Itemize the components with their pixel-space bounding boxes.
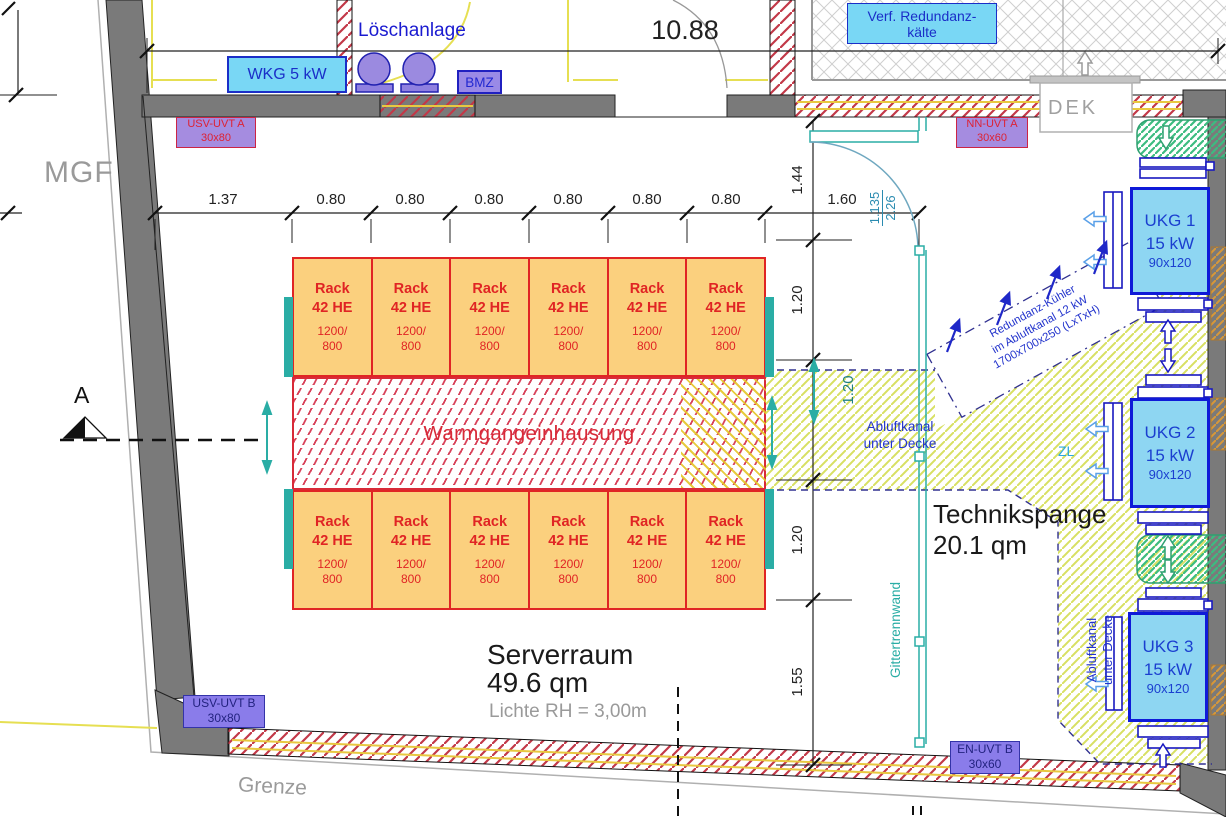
dim-right-0: 1.44 <box>789 153 805 207</box>
usv-uvt-b-box: USV-UVT B 30x80 <box>183 695 265 728</box>
section-marker-label: A <box>74 382 89 409</box>
edge-marks <box>913 806 921 815</box>
usv-uvt-a-name: USV-UVT A <box>177 118 255 132</box>
ukg3-size: 90x120 <box>1147 681 1190 698</box>
technikspange-area: 20.1 qm <box>933 530 1027 561</box>
rack-cell: Rack42 HE1200/800 <box>449 492 528 608</box>
technikspange-name: Technikspange <box>933 499 1106 530</box>
dim-rack-3: 0.80 <box>459 191 519 208</box>
rack-cell: Rack42 HE1200/800 <box>607 492 686 608</box>
containment-panel <box>284 297 293 377</box>
ukg1-power: 15 kW <box>1146 233 1194 255</box>
dim-rack-0: 1.37 <box>193 191 253 208</box>
rack-cell: Rack42 HE1200/800 <box>294 259 371 375</box>
nn-uvt-a-size: 30x60 <box>957 132 1027 146</box>
warmgang-yellow-overlay <box>681 379 766 488</box>
abluftkanal-vertical-label: Abluftkanal unter Decke <box>1083 588 1117 712</box>
dim-door-fraction-top: 1.135 <box>867 190 883 227</box>
rack-cell: Rack42 HE1200/800 <box>528 259 607 375</box>
grenze-label: Grenze <box>237 773 307 801</box>
loeschanlage-bottles <box>356 53 438 92</box>
room-label-loeschanlage: Löschanlage <box>358 20 466 42</box>
dim-door-fraction: 1.135 2.26 <box>867 178 903 238</box>
ukg3-unit: UKG 3 15 kW 90x120 <box>1128 612 1208 722</box>
ukg2-unit: UKG 2 15 kW 90x120 <box>1130 398 1210 508</box>
wkg-label: WKG 5 kW <box>247 66 326 84</box>
ukg2-size: 90x120 <box>1149 467 1192 484</box>
bmz-label: BMZ <box>465 75 494 90</box>
verf-line2: kälte <box>868 24 977 40</box>
usv-uvt-b-size: 30x80 <box>184 711 264 726</box>
verf-line1: Verf. Redundanz- <box>868 8 977 24</box>
gittertrennwand-label: Gittertrennwand <box>887 555 903 705</box>
verf-redundanzkaelte-box: Verf. Redundanz- kälte <box>847 3 997 44</box>
rack-row-1: Rack42 HE1200/800 Rack42 HE1200/800 Rack… <box>292 257 766 377</box>
ukg2-power: 15 kW <box>1146 445 1194 467</box>
section-marker-triangle <box>64 417 106 438</box>
ukg1-name: UKG 1 <box>1144 210 1195 232</box>
rack-cell: Rack42 HE1200/800 <box>607 259 686 375</box>
usv-uvt-b-name: USV-UVT B <box>184 696 264 711</box>
dim-right-1: 1.20 <box>789 273 805 327</box>
bmz-unit: BMZ <box>457 70 502 94</box>
ukg3-power: 15 kW <box>1144 659 1192 681</box>
dim-door-fraction-bottom: 2.26 <box>883 195 898 220</box>
dim-rack-5: 0.80 <box>617 191 677 208</box>
wkg-unit: WKG 5 kW <box>227 56 347 93</box>
dim-rack-6: 0.80 <box>696 191 756 208</box>
dek-label: DEK <box>1048 97 1098 120</box>
rack-cell: Rack42 HE1200/800 <box>685 259 764 375</box>
ukg1-unit: UKG 1 15 kW 90x120 <box>1130 187 1210 295</box>
zl-label: ZL <box>1058 443 1074 459</box>
dim-rack-1: 0.80 <box>301 191 361 208</box>
rack-cell: Rack42 HE1200/800 <box>371 492 450 608</box>
ukg2-name: UKG 2 <box>1144 422 1195 444</box>
warmgang-label: Warmgangeinhausung <box>424 422 635 446</box>
floorplan-serverraum: MGF Löschanlage WKG 5 kW BMZ Verf. Redun… <box>0 0 1226 817</box>
warmgang-zone: Warmgangeinhausung <box>292 377 766 490</box>
serverraum-area: 49.6 qm <box>487 667 588 699</box>
rack-cell: Rack42 HE1200/800 <box>528 492 607 608</box>
dim-right-4: 1.55 <box>789 655 805 709</box>
rack-height: 42 HE <box>294 299 371 318</box>
nn-uvt-a-box: NN-UVT A 30x60 <box>956 117 1028 148</box>
en-uvt-b-name: EN-UVT B <box>951 742 1019 757</box>
rack-row-2: Rack42 HE1200/800 Rack42 HE1200/800 Rack… <box>292 490 766 610</box>
rack-dim2: 800 <box>294 339 371 354</box>
containment-panel <box>284 489 293 569</box>
containment-panel <box>765 489 774 569</box>
rack-cell: Rack42 HE1200/800 <box>371 259 450 375</box>
en-uvt-b-size: 30x60 <box>951 757 1019 772</box>
abluftkanal-label: Abluftkanal unter Decke <box>845 419 955 453</box>
rack-cell: Rack42 HE1200/800 <box>449 259 528 375</box>
rack-dim1: 1200/ <box>294 324 371 339</box>
serverraum-clear-height: Lichte RH = 3,00m <box>489 701 647 723</box>
dim-overall-width: 10.88 <box>640 15 730 46</box>
rack-title: Rack <box>294 280 371 299</box>
dim-right-3: 1.20 <box>789 513 805 567</box>
rack-cell: Rack42 HE1200/800 <box>294 492 371 608</box>
left-arrow-icon <box>1084 212 1106 226</box>
dim-rack-2: 0.80 <box>380 191 440 208</box>
dim-right-2: 1.20 <box>840 363 856 417</box>
containment-panel <box>765 297 774 377</box>
nn-uvt-a-name: NN-UVT A <box>957 118 1027 132</box>
room-label-mgf: MGF <box>44 156 114 190</box>
rack-cell: Rack42 HE1200/800 <box>685 492 764 608</box>
usv-uvt-a-size: 30x80 <box>177 132 255 146</box>
usv-uvt-a-box: USV-UVT A 30x80 <box>176 117 256 148</box>
ukg1-size: 90x120 <box>1149 255 1192 272</box>
dim-rack-4: 0.80 <box>538 191 598 208</box>
en-uvt-b-box: EN-UVT B 30x60 <box>950 741 1020 774</box>
ukg3-name: UKG 3 <box>1142 636 1193 658</box>
dim-door-width: 1.60 <box>812 191 872 208</box>
